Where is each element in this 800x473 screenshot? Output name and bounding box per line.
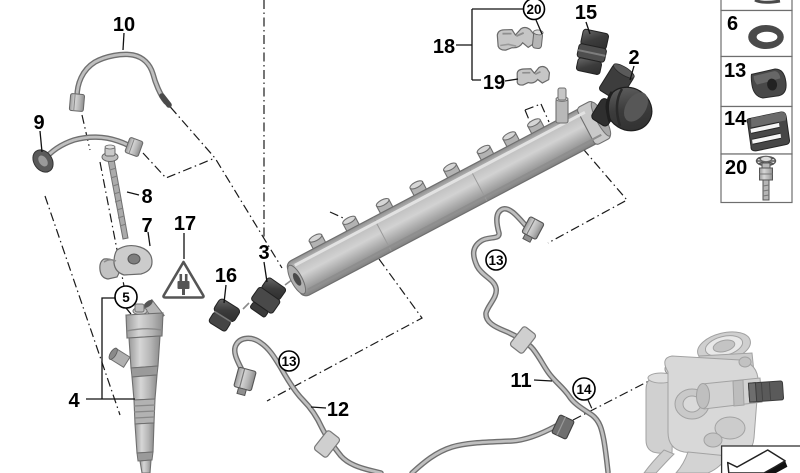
svg-text:12: 12: [327, 399, 349, 421]
svg-text:7: 7: [141, 215, 152, 237]
svg-text:20: 20: [526, 2, 541, 17]
svg-text:5: 5: [122, 290, 130, 305]
svg-text:14: 14: [576, 382, 592, 397]
svg-text:14: 14: [724, 108, 747, 130]
svg-text:15: 15: [575, 2, 597, 24]
svg-text:8: 8: [141, 186, 152, 208]
svg-text:20: 20: [725, 157, 747, 179]
svg-text:18: 18: [433, 36, 455, 58]
svg-text:10: 10: [113, 14, 135, 36]
svg-text:13: 13: [488, 253, 504, 268]
svg-text:2: 2: [628, 47, 639, 69]
svg-text:3: 3: [258, 242, 269, 264]
svg-text:16: 16: [215, 265, 237, 287]
svg-text:13: 13: [281, 354, 297, 369]
svg-text:17: 17: [174, 213, 196, 235]
svg-text:13: 13: [724, 60, 746, 82]
svg-text:6: 6: [727, 13, 738, 35]
svg-text:11: 11: [510, 370, 531, 392]
svg-text:19: 19: [483, 72, 505, 94]
svg-text:9: 9: [33, 112, 44, 134]
svg-text:4: 4: [68, 390, 80, 412]
